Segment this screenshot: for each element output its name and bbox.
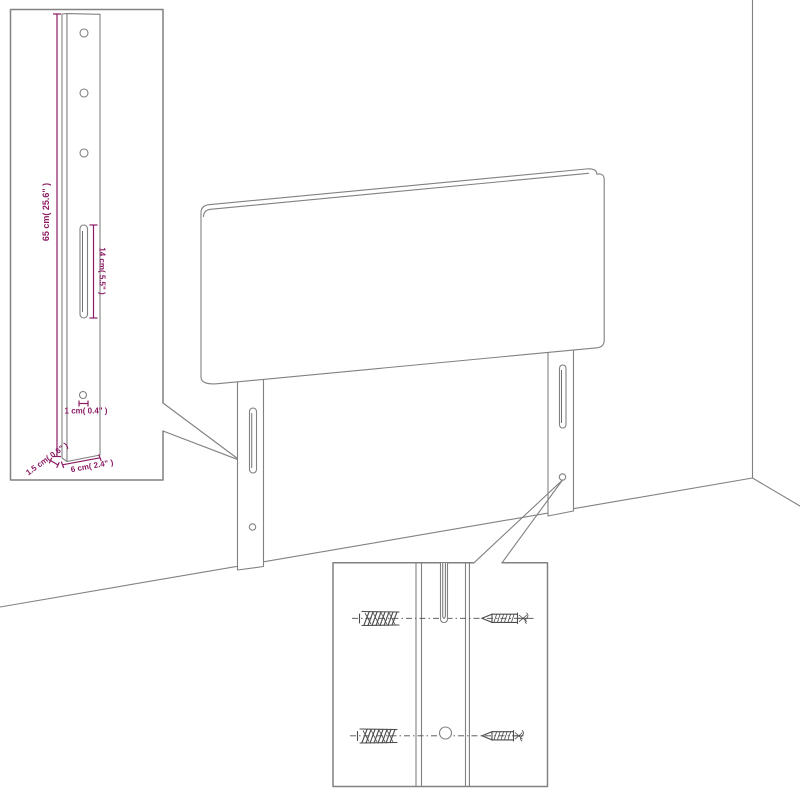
inset-hole [440, 727, 452, 739]
dimension-label-hole-diameter: 1 cm( 0.4" ) [65, 407, 108, 416]
floor-line-right [753, 478, 800, 506]
dimension-label-slot-length: 14 cm( 5.5" ) [98, 247, 107, 294]
callout-line-right [502, 480, 563, 563]
dimension-label-leg-height: 65 cm( 25.6" ) [41, 183, 51, 241]
headboard-panel [201, 169, 604, 384]
callout-line-upper [163, 403, 237, 458]
enlarged-leg-side-face [62, 14, 67, 462]
diagram-linework [0, 0, 800, 800]
product-diagram: 65 cm( 25.6" ) 14 cm( 5.5" ) 1 cm( 0.4" … [0, 0, 800, 800]
mounting-detail-inset [333, 480, 563, 787]
enlarged-leg-front-face [67, 14, 100, 462]
inset-slot [441, 563, 448, 623]
callout-line-lower [163, 431, 237, 459]
left-leg [238, 374, 264, 570]
callout-line-left [474, 480, 563, 563]
headboard-outline [201, 169, 604, 384]
